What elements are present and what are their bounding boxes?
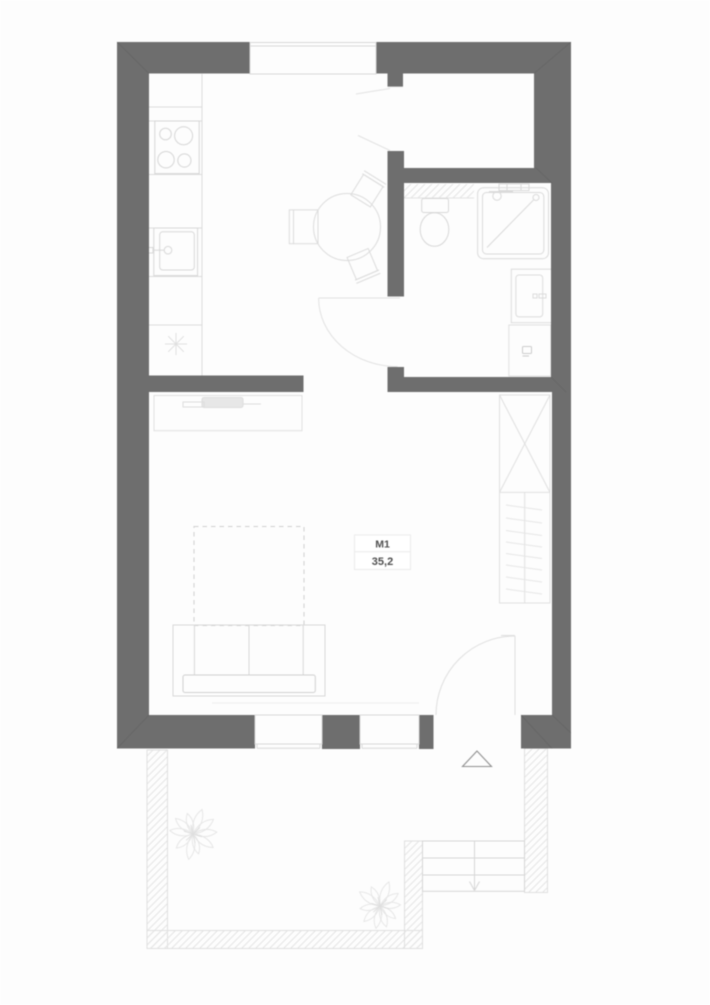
svg-text:35,2: 35,2	[372, 556, 393, 568]
svg-text:M1: M1	[375, 539, 390, 551]
